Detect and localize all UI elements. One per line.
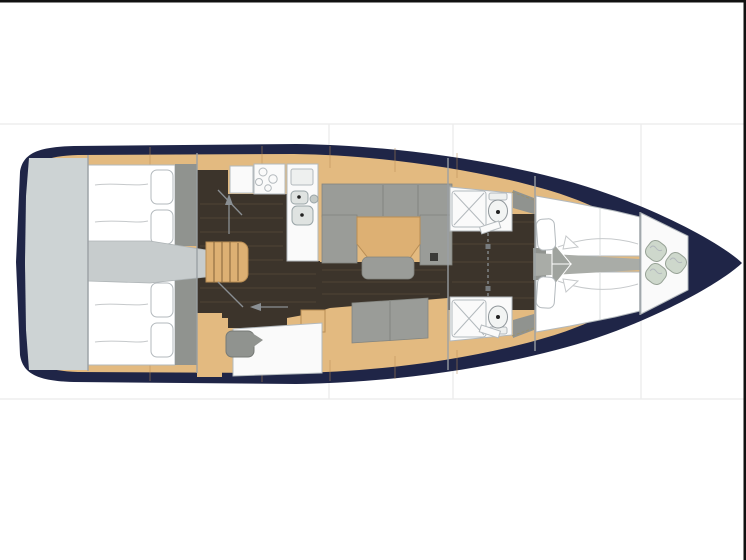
door-hinge — [486, 244, 491, 249]
companionway-steps — [206, 242, 248, 282]
head-starboard — [450, 297, 512, 341]
companionway — [88, 241, 248, 283]
wardrobe-starboard — [175, 278, 197, 365]
drain — [297, 195, 301, 199]
faucet — [310, 195, 318, 203]
head-port — [450, 187, 512, 234]
pillow — [151, 283, 173, 317]
stern-transom-platform — [25, 158, 88, 370]
aft-cabin-starboard — [88, 278, 197, 365]
cutting-board — [291, 169, 313, 185]
table-leg-fitting — [430, 253, 438, 261]
salon-settee-starboard — [352, 298, 428, 343]
pillow — [151, 323, 173, 357]
pillow — [536, 218, 556, 250]
toilet-drain — [496, 210, 500, 214]
salon-table — [357, 217, 420, 258]
galley-cabinet — [230, 166, 253, 193]
yacht-floorplan-drawing — [0, 0, 746, 560]
toilet-tank — [489, 193, 507, 200]
wardrobe-port — [175, 164, 197, 246]
pillow — [151, 170, 173, 204]
cabin-floor-wood — [197, 313, 222, 377]
drain — [300, 213, 304, 217]
sofa-left-arm — [322, 215, 357, 263]
cockpit-corridor — [88, 241, 206, 283]
pillow — [536, 276, 556, 308]
nav-seat — [226, 331, 254, 357]
salon-stool — [362, 257, 414, 279]
pillow — [151, 210, 173, 244]
toilet-drain — [496, 315, 500, 319]
top-frame-edge — [0, 0, 746, 3]
aft-cabin-port — [88, 164, 197, 246]
door-hinge — [486, 286, 491, 291]
yacht-floorplan-page — [0, 0, 746, 560]
sofa-back — [322, 184, 452, 217]
